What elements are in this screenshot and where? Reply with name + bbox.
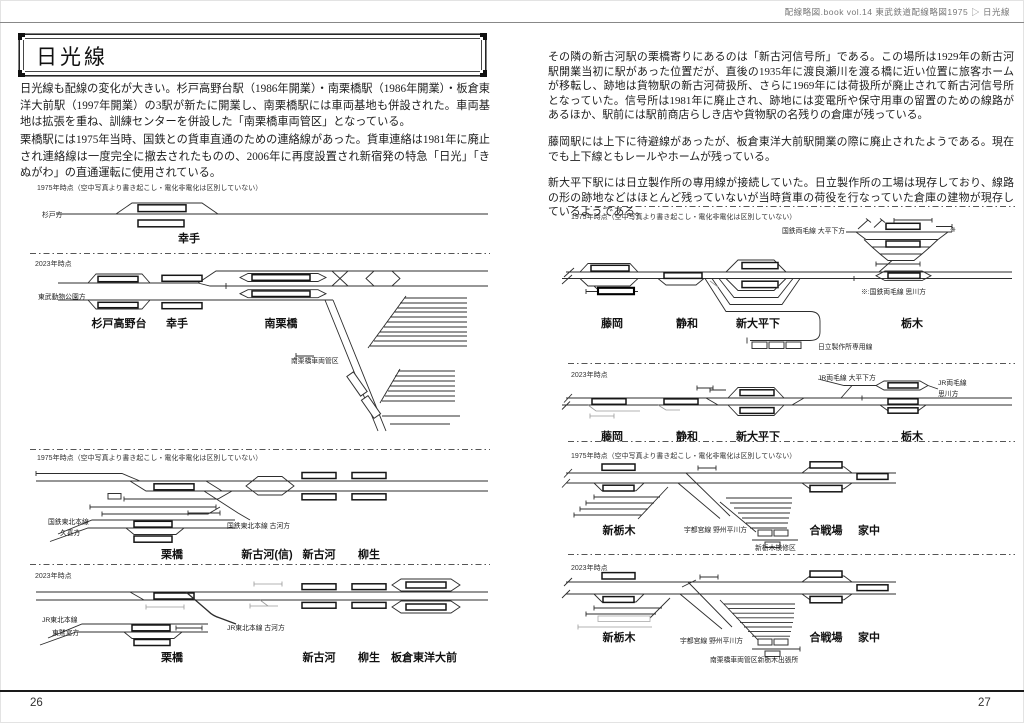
divider xyxy=(568,441,1015,442)
station-label-satte: 幸手 xyxy=(178,230,200,246)
siding-label: 日立製作所専用線 xyxy=(818,341,872,351)
yard-label: 南栗橋車両管区 xyxy=(291,355,339,365)
book-spread: 配線略図.book vol.14 東武鉄道配線略図1975 ▷ 日光線 26 2… xyxy=(0,0,1024,723)
diagram-caption: 1975年時点（空中写真より書き起こし・電化非電化は区別していない） xyxy=(37,453,262,463)
station-label-kassenba: 合戦場 xyxy=(810,629,843,645)
paragraph: 藤岡駅には上下に待避線があったが、板倉東洋大前駅開業の際に廃止されたようである。… xyxy=(548,135,1014,164)
page-number-right: 27 xyxy=(978,697,991,709)
paragraph: その隣の新古河駅の栗橋寄りにあるのは「新古河信号所」である。この場所は1929年… xyxy=(548,50,1014,123)
station-label-yagyu: 柳生 xyxy=(358,649,380,665)
yard-label: 南栗橋車両管区新栃木出張所 xyxy=(710,654,798,664)
station-label-shintochigi: 新栃木 xyxy=(603,522,636,538)
line-label: JR東北本線 古河方 xyxy=(227,622,285,632)
divider xyxy=(30,449,490,450)
divider xyxy=(568,363,1015,364)
station-label-minamikurihashi: 南栗橋 xyxy=(265,315,298,331)
station-label-yagyu: 柳生 xyxy=(358,546,380,562)
track-diagram-shintochigi-2023 xyxy=(560,570,1015,665)
direction-label: 東鷲宮方 xyxy=(52,627,79,637)
line-label: JR両毛線 xyxy=(938,377,967,387)
line-label: JR東北本線 xyxy=(42,614,78,624)
station-label-itakuratoyodaimae: 板倉東洋大前 xyxy=(391,649,457,665)
line-label: 国鉄両毛線 大平下方 xyxy=(782,225,845,235)
asterisk-mark: ※ xyxy=(950,226,956,234)
page-title: 日光線 xyxy=(36,41,108,71)
direction-label: 東武動物公園方 xyxy=(38,291,86,301)
direction-label: 杉戸方 xyxy=(42,209,62,219)
top-rule xyxy=(0,22,1024,23)
divider xyxy=(568,554,1015,555)
bottom-rule xyxy=(0,690,1024,692)
track-diagram-satte-1975 xyxy=(30,193,490,248)
line-label: 宇都宮線 野州平川方 xyxy=(680,635,743,645)
track-diagram-kurihashi-2023 xyxy=(30,578,490,648)
station-label-tochigi: 栃木 xyxy=(901,315,923,331)
station-label-shizuwa: 静和 xyxy=(676,315,698,331)
paragraph: 栗橋駅には1975年当時、国鉄との貨車直通のための連絡線があった。貨車連絡は19… xyxy=(20,132,490,182)
station-label-kassenba: 合戦場 xyxy=(810,522,843,538)
station-label-shintochigi: 新栃木 xyxy=(603,629,636,645)
track-diagram-kurihashi-1975 xyxy=(30,463,490,547)
line-label: 国鉄東北本線 xyxy=(48,516,89,526)
line-label: 国鉄東北本線 古河方 xyxy=(227,520,290,530)
yard-label: 新栃木検修区 xyxy=(755,542,796,552)
divider xyxy=(30,253,490,254)
footnote-label: ※:国鉄両毛線 思川方 xyxy=(861,286,926,296)
track-diagram-fujioka-tochigi-1975 xyxy=(560,218,1015,358)
divider xyxy=(568,206,1015,207)
page-number-left: 26 xyxy=(30,697,43,709)
station-label-kurihashi: 栗橋 xyxy=(161,649,183,665)
line-label: JR両毛線 大平下方 xyxy=(818,372,876,382)
paragraph: 日光線も配線の変化が大きい。杉戸高野台駅（1986年開業）・南栗橋駅（1986年… xyxy=(20,81,490,131)
station-label-shinkoga-signal: 新古河(信) xyxy=(241,546,292,562)
station-label-satte: 幸手 xyxy=(166,315,188,331)
running-title: 配線略図.book vol.14 東武鉄道配線略図1975 ▷ 日光線 xyxy=(785,6,1010,18)
station-label-shinkoga: 新古河 xyxy=(303,546,336,562)
station-label-sugitotakanodai: 杉戸高野台 xyxy=(92,315,147,331)
line-label: 宇都宮線 野州平川方 xyxy=(684,524,747,534)
station-label-shinkoga: 新古河 xyxy=(303,649,336,665)
track-diagram-shintochigi-1975 xyxy=(560,460,1015,552)
direction-label: 思川方 xyxy=(938,388,958,398)
station-label-ienaka: 家中 xyxy=(858,629,880,645)
section-title-frame: 日光線 xyxy=(18,33,487,77)
station-label-kurihashi: 栗橋 xyxy=(161,546,183,562)
station-label-fujioka: 藤岡 xyxy=(601,315,623,331)
divider xyxy=(30,564,490,565)
track-diagram-fujioka-tochigi-2023 xyxy=(560,378,1015,438)
station-label-ienaka: 家中 xyxy=(858,522,880,538)
track-diagram-minamikurihashi-2023 xyxy=(30,266,490,446)
station-label-shinohirashita: 新大平下 xyxy=(736,315,780,331)
direction-label: 久喜方 xyxy=(60,527,80,537)
diagram-caption: 1975年時点（空中写真より書き起こし・電化非電化は区別していない） xyxy=(37,183,262,193)
